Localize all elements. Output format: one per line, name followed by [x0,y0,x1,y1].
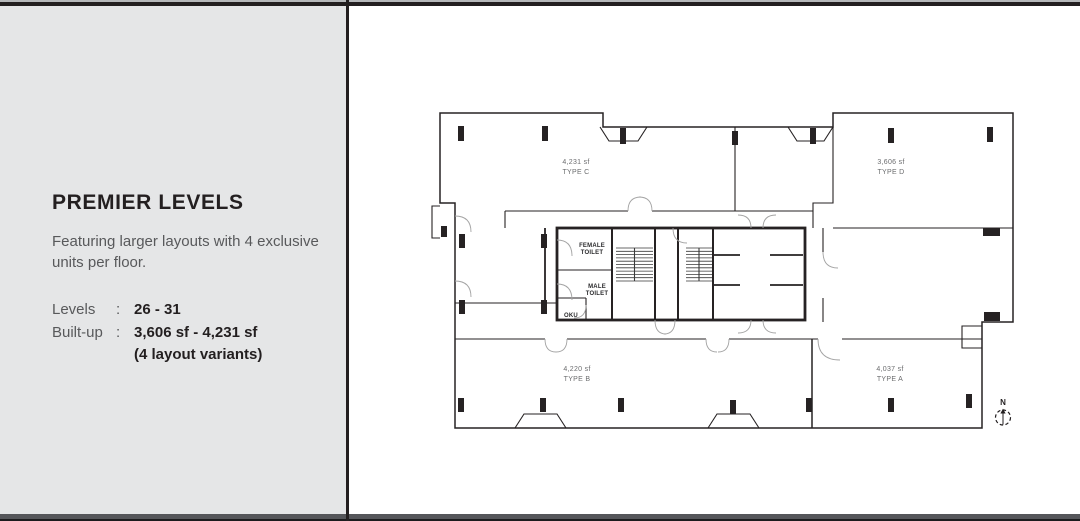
unit-name-type-d: TYPE D [877,169,904,176]
door-swings [455,197,840,360]
north-compass-icon: N [996,398,1011,425]
unit-name-type-a: TYPE A [877,376,903,383]
male-toilet-label-1: MALE [588,284,606,290]
unit-name-type-b: TYPE B [564,376,591,383]
oku-room-label: OKU [564,313,578,319]
unit-name-type-c: TYPE C [562,169,589,176]
unit-area-type-a: 4,037 sf [876,366,903,373]
lift-shafts [714,255,803,285]
floorplan-drawing: 4,231 sf TYPE C 3,606 sf TYPE D 4,220 sf… [0,0,1080,521]
columns [441,126,1000,414]
unit-area-type-b: 4,220 sf [563,366,590,373]
female-toilet-label-2: TOILET [581,250,604,256]
female-toilet-label-1: FEMALE [579,243,605,249]
male-toilet-label-2: TOILET [586,291,609,297]
interior-walls [432,127,1013,428]
building-outline [440,113,1013,428]
staircase-treads [616,248,712,281]
unit-labels: 4,231 sf TYPE C 3,606 sf TYPE D 4,220 sf… [562,159,904,383]
compass-north-label: N [1000,398,1006,407]
unit-area-type-d: 3,606 sf [877,159,904,166]
unit-area-type-c: 4,231 sf [562,159,589,166]
